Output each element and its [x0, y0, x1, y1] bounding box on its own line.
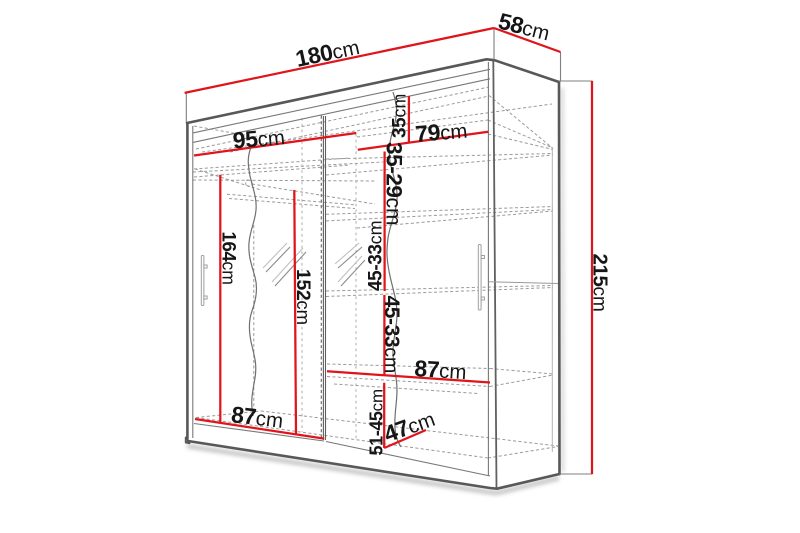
svg-text:215cm: 215cm — [588, 254, 611, 312]
svg-text:35cm: 35cm — [390, 94, 411, 138]
svg-text:45-33cm: 45-33cm — [366, 220, 387, 291]
svg-text:164cm: 164cm — [218, 232, 239, 285]
svg-text:45-33cm: 45-33cm — [380, 296, 403, 374]
svg-text:152cm: 152cm — [292, 269, 314, 325]
svg-text:79cm: 79cm — [414, 117, 468, 147]
svg-text:51-45cm: 51-45cm — [367, 389, 387, 456]
svg-text:35-29cm: 35-29cm — [382, 142, 407, 226]
svg-text:95cm: 95cm — [232, 123, 286, 153]
